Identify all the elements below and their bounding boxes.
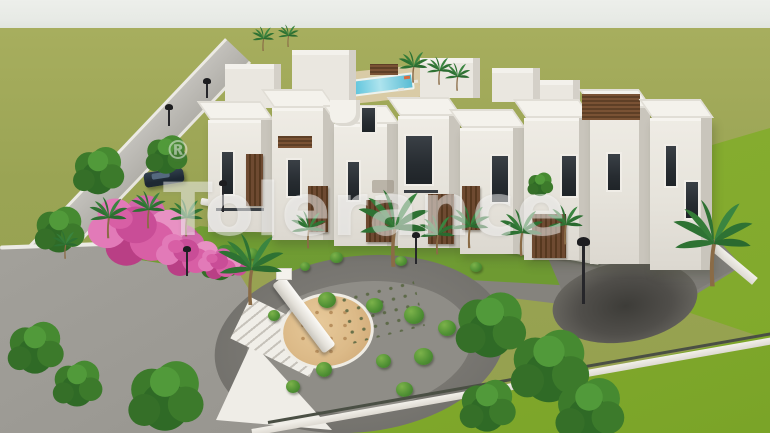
palm-tree bbox=[250, 26, 276, 52]
terrace-door bbox=[360, 106, 377, 134]
topiary-bush bbox=[318, 292, 336, 308]
roof-terrace bbox=[639, 99, 714, 118]
pool-pergola bbox=[370, 64, 398, 75]
topiary-bush bbox=[268, 310, 280, 321]
window bbox=[606, 152, 622, 192]
curved-balcony bbox=[330, 100, 360, 126]
palm-tree bbox=[128, 190, 168, 230]
street-lamp bbox=[582, 246, 585, 304]
shrub bbox=[470, 262, 482, 272]
leafy-tree bbox=[66, 138, 130, 202]
leafy-tree bbox=[546, 366, 632, 433]
palm-tree bbox=[442, 62, 472, 92]
rooftop-pergola bbox=[582, 94, 640, 120]
leafy-tree bbox=[452, 370, 522, 433]
leafy-tree bbox=[46, 352, 108, 414]
roof-terrace bbox=[513, 99, 592, 118]
leafy-tree bbox=[118, 348, 212, 433]
topiary-bush bbox=[376, 354, 391, 368]
topiary-bush bbox=[316, 362, 332, 377]
palm-tree bbox=[276, 24, 300, 48]
architectural-render: Tolerance® bbox=[0, 0, 770, 433]
roof-terrace bbox=[197, 101, 274, 120]
villa-unit bbox=[590, 108, 650, 264]
registered-trademark-icon: ® bbox=[165, 138, 192, 164]
palm-tree bbox=[50, 230, 80, 260]
window bbox=[664, 144, 678, 188]
back-villa bbox=[492, 68, 540, 102]
topiary-bush bbox=[404, 306, 424, 324]
topiary-bush bbox=[414, 348, 433, 365]
roof-terrace bbox=[449, 109, 526, 128]
street-lamp bbox=[206, 84, 208, 98]
palm-tree bbox=[86, 196, 130, 240]
shrub bbox=[300, 262, 310, 271]
watermark-text: Tolerance bbox=[163, 174, 567, 247]
pergola bbox=[278, 136, 312, 148]
topiary-bush bbox=[286, 380, 300, 393]
topiary-bush bbox=[366, 298, 383, 313]
street-lamp bbox=[186, 252, 188, 276]
street-lamp bbox=[168, 110, 170, 126]
shrub bbox=[330, 252, 343, 263]
palm-tree bbox=[666, 198, 758, 290]
